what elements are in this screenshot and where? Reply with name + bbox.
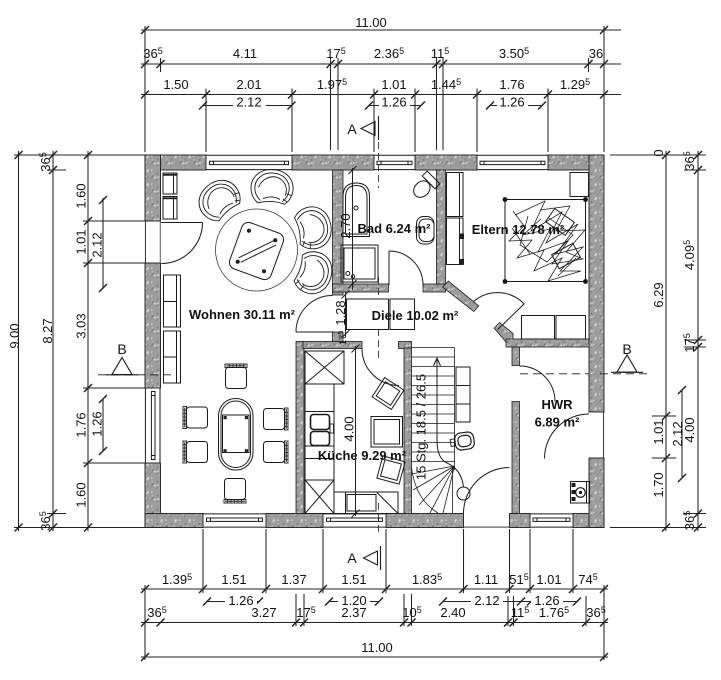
- svg-text:365: 365: [143, 46, 162, 61]
- svg-text:0: 0: [651, 149, 666, 156]
- svg-text:1.60: 1.60: [74, 183, 89, 208]
- svg-text:36: 36: [589, 46, 603, 61]
- svg-text:15 Stg. 18.5 / 26.5: 15 Stg. 18.5 / 26.5: [414, 374, 429, 480]
- svg-text:1.975: 1.975: [317, 77, 347, 92]
- svg-text:2.40: 2.40: [440, 605, 465, 620]
- svg-text:1.01: 1.01: [381, 77, 406, 92]
- svg-text:105: 105: [402, 605, 421, 620]
- svg-text:365: 365: [586, 605, 605, 620]
- svg-text:1.01: 1.01: [651, 419, 666, 444]
- svg-text:6.89 m²: 6.89 m²: [535, 415, 580, 430]
- svg-text:745: 745: [578, 572, 597, 587]
- svg-text:Wohnen 30.11 m²: Wohnen 30.11 m²: [189, 307, 296, 322]
- svg-text:4.095: 4.095: [682, 240, 697, 270]
- svg-text:1.01: 1.01: [536, 572, 561, 587]
- svg-text:1.51: 1.51: [221, 572, 246, 587]
- svg-text:115: 115: [431, 46, 450, 61]
- svg-text:1.765: 1.765: [539, 605, 569, 620]
- svg-text:1.51: 1.51: [341, 572, 366, 587]
- svg-text:1.26: 1.26: [499, 95, 524, 110]
- svg-text:2.70: 2.70: [338, 213, 353, 238]
- svg-text:1.50: 1.50: [163, 77, 188, 92]
- svg-text:1.60: 1.60: [74, 482, 89, 507]
- svg-text:2.01: 2.01: [236, 77, 261, 92]
- svg-text:3.27: 3.27: [251, 605, 276, 620]
- svg-text:1.395: 1.395: [162, 572, 192, 587]
- svg-text:2.365: 2.365: [374, 46, 404, 61]
- svg-text:Diele 10.02 m²: Diele 10.02 m²: [372, 308, 459, 323]
- svg-text:11.00: 11.00: [355, 15, 387, 30]
- svg-text:11.00: 11.00: [361, 640, 393, 655]
- svg-text:1.295: 1.295: [560, 77, 590, 92]
- svg-text:1.76: 1.76: [74, 412, 89, 437]
- svg-text:175: 175: [682, 333, 697, 352]
- svg-text:1.445: 1.445: [431, 77, 461, 92]
- svg-text:2.12: 2.12: [474, 593, 499, 608]
- svg-text:1.37: 1.37: [281, 572, 306, 587]
- svg-text:3.505: 3.505: [499, 46, 529, 61]
- svg-text:8.27: 8.27: [40, 318, 55, 343]
- svg-text:365: 365: [38, 511, 53, 530]
- svg-text:A: A: [347, 550, 357, 566]
- svg-text:6.29: 6.29: [651, 282, 666, 307]
- svg-text:1.26: 1.26: [228, 593, 253, 608]
- svg-text:HWR: HWR: [541, 397, 573, 412]
- svg-text:175: 175: [326, 46, 345, 61]
- svg-text:115: 115: [511, 605, 530, 620]
- svg-text:1.26: 1.26: [381, 95, 406, 110]
- svg-text:Küche 9.29 m²: Küche 9.29 m²: [318, 448, 407, 463]
- svg-text:1.11: 1.11: [474, 572, 498, 587]
- svg-text:4.11: 4.11: [233, 46, 257, 61]
- svg-text:365: 365: [682, 151, 697, 170]
- svg-text:1.28: 1.28: [333, 300, 348, 325]
- svg-text:175: 175: [296, 605, 315, 620]
- svg-text:515: 515: [509, 572, 528, 587]
- svg-text:Eltern 12.78 m²: Eltern 12.78 m²: [472, 222, 565, 237]
- svg-text:3.03: 3.03: [74, 313, 89, 338]
- svg-text:365: 365: [147, 605, 166, 620]
- svg-text:2.37: 2.37: [341, 605, 366, 620]
- svg-text:A: A: [347, 121, 357, 137]
- svg-text:2.12: 2.12: [236, 95, 261, 110]
- svg-text:4.00: 4.00: [682, 417, 697, 442]
- svg-text:1.01: 1.01: [74, 229, 89, 254]
- svg-text:1.26: 1.26: [90, 411, 105, 436]
- svg-text:1.76: 1.76: [499, 77, 524, 92]
- svg-text:2.12: 2.12: [90, 232, 105, 257]
- svg-text:9.00: 9.00: [7, 323, 22, 348]
- svg-text:4.00: 4.00: [342, 416, 357, 441]
- svg-text:Bad 6.24 m²: Bad 6.24 m²: [358, 221, 432, 236]
- svg-text:1.70: 1.70: [651, 472, 666, 497]
- svg-text:B: B: [117, 341, 126, 357]
- svg-text:1.835: 1.835: [412, 572, 442, 587]
